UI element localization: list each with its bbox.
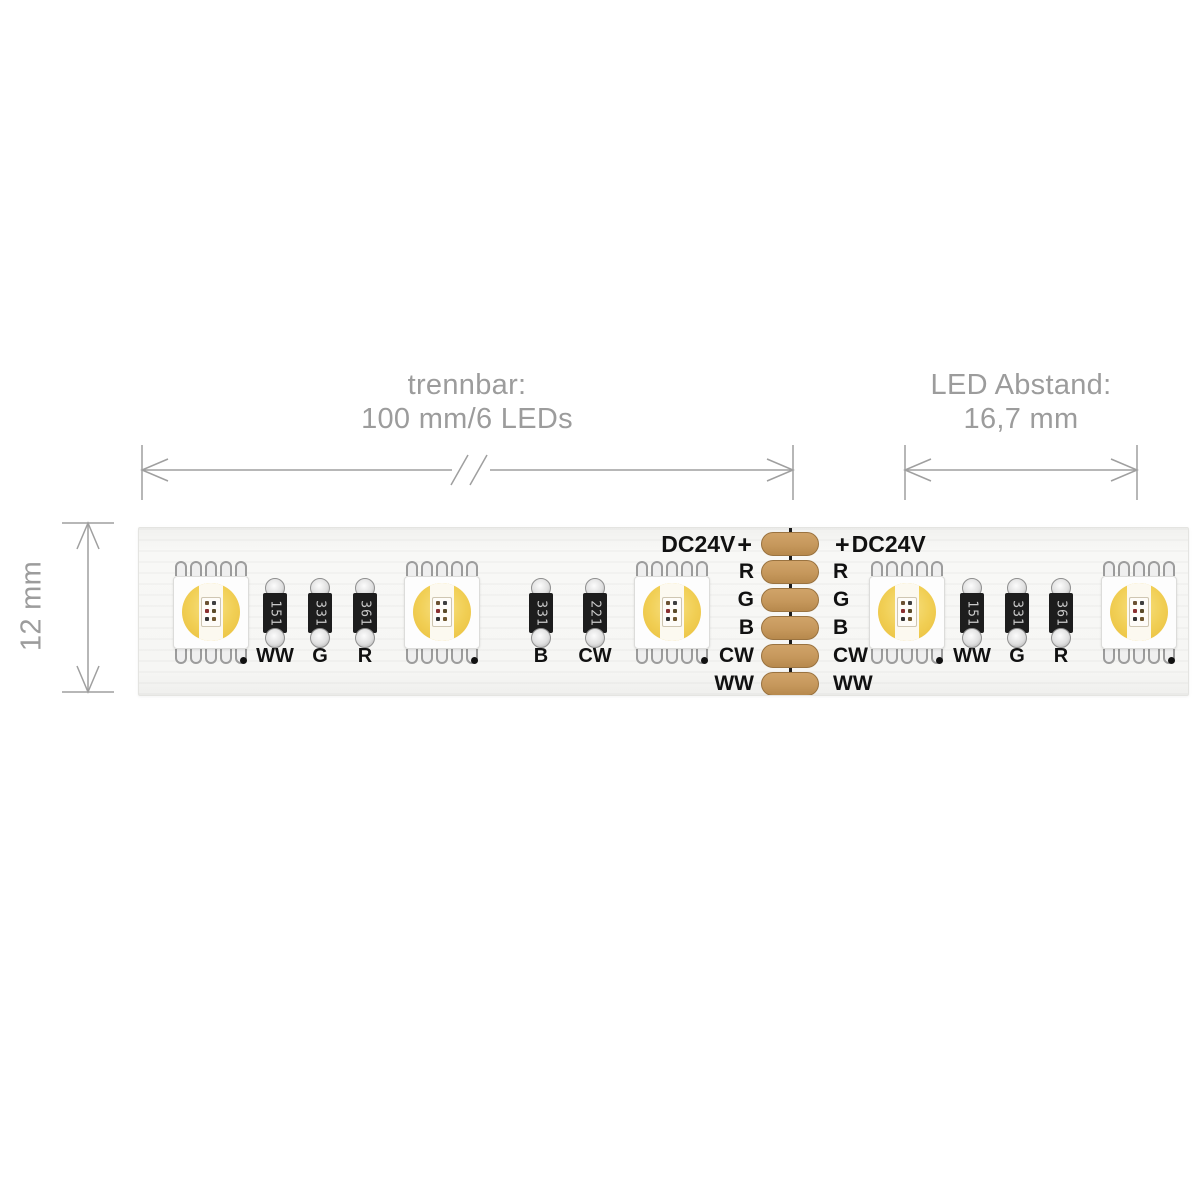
led-pins-top: [1101, 561, 1177, 576]
led-package: [173, 576, 249, 649]
led-pins-bottom: [173, 649, 249, 664]
pad-label-dc24v-left: DC24V+: [574, 532, 754, 556]
separable-length-value: 100 mm/6 LEDs: [317, 402, 617, 436]
break-symbol: [451, 455, 487, 485]
pad-label-cw-left: CW: [574, 644, 754, 668]
led-pins-bottom: [1101, 649, 1177, 664]
pad-label-b-left: B: [574, 616, 754, 640]
polarity-dot: [1168, 657, 1175, 664]
led-strip-dimension-diagram: trennbar: 100 mm/6 LEDs LED Abstand: 16,…: [0, 0, 1200, 1200]
separable-length-label: trennbar: 100 mm/6 LEDs: [317, 368, 617, 436]
pad-label-dc24v-right: +DC24V: [833, 532, 1033, 556]
resistor-code: 151: [268, 600, 283, 626]
solder-pad-ww: [761, 672, 819, 696]
separable-length-title: trennbar:: [317, 368, 617, 402]
led-spacing-title: LED Abstand:: [871, 368, 1171, 402]
solder-pad-cw: [761, 644, 819, 668]
channel-label: R: [1031, 645, 1091, 668]
led-package: [404, 576, 480, 649]
led-pins-bottom: [404, 649, 480, 664]
pad-label-ww-right: WW: [833, 672, 1033, 696]
pad-label-g-left: G: [574, 588, 754, 612]
led-module: [1101, 561, 1177, 664]
resistor: 361: [1048, 578, 1074, 648]
pad-label-g-right: G: [833, 588, 1033, 612]
led-lens: [182, 583, 240, 641]
channel-label: R: [335, 645, 395, 668]
led-chip: [1129, 597, 1149, 627]
resistor-code: 361: [1054, 600, 1069, 626]
resistor: 151: [262, 578, 288, 648]
led-spacing-dimension: [905, 445, 1137, 500]
led-module: [404, 561, 480, 664]
strip-width-dimension: [62, 523, 114, 692]
resistor-code: 361: [358, 600, 373, 626]
pad-label-b-right: B: [833, 616, 1033, 640]
resistor: 331: [528, 578, 554, 648]
solder-pad-dc24v: [761, 532, 819, 556]
channel-label: B: [511, 645, 571, 668]
pad-label-cw-right: CW: [833, 644, 1033, 668]
resistor: 331: [307, 578, 333, 648]
separable-length-dimension: [142, 445, 793, 500]
led-package: [1101, 576, 1177, 649]
led-lens: [413, 583, 471, 641]
solder-pad-b: [761, 616, 819, 640]
led-spacing-value: 16,7 mm: [871, 402, 1171, 436]
solder-pad-r: [761, 560, 819, 584]
polarity-dot: [471, 657, 478, 664]
resistor-code: 331: [313, 600, 328, 626]
resistor: 361: [352, 578, 378, 648]
led-spacing-label: LED Abstand: 16,7 mm: [871, 368, 1171, 436]
pad-label-r-left: R: [574, 560, 754, 584]
led-chip: [432, 597, 452, 627]
led-pins-top: [404, 561, 480, 576]
led-strip: 151 WW 331 G 361 R 331 B 221 CW 151 WW 3…: [138, 527, 1189, 696]
solder-pad-g: [761, 588, 819, 612]
led-module: [173, 561, 249, 664]
led-pins-top: [173, 561, 249, 576]
led-chip: [201, 597, 221, 627]
pad-label-r-right: R: [833, 560, 1033, 584]
pad-label-ww-left: WW: [574, 672, 754, 696]
resistor-code: 331: [534, 600, 549, 626]
strip-width-label: 12 mm: [13, 546, 51, 667]
led-lens: [1110, 583, 1168, 641]
